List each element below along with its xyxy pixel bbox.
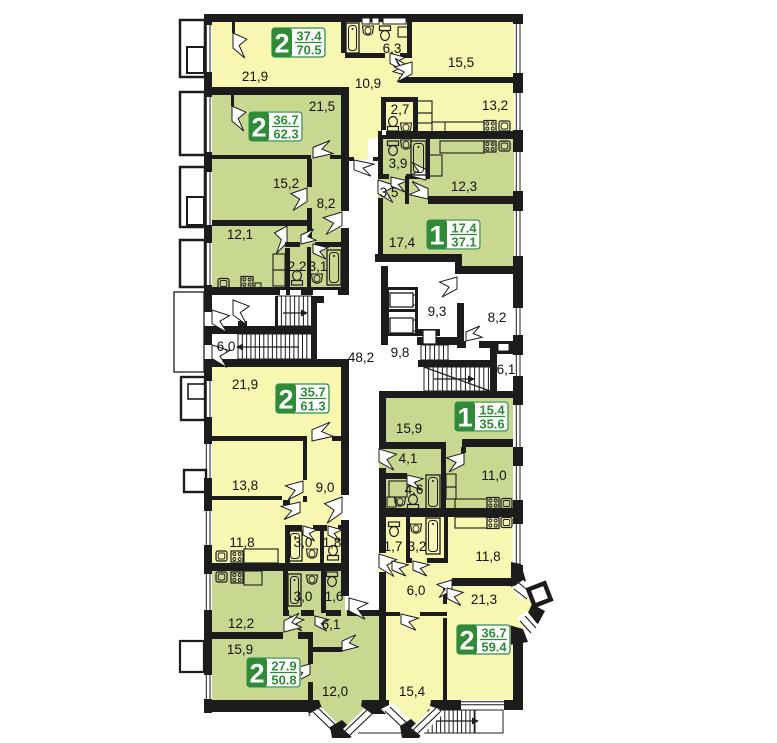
svg-text:1,8: 1,8: [323, 535, 342, 550]
svg-text:15,9: 15,9: [227, 642, 253, 657]
svg-text:2,2: 2,2: [288, 259, 307, 274]
svg-text:37.1: 37.1: [451, 235, 476, 250]
svg-text:2: 2: [251, 113, 266, 143]
svg-text:2: 2: [274, 29, 289, 59]
svg-text:27.9: 27.9: [271, 659, 296, 674]
svg-text:3,1: 3,1: [309, 259, 328, 274]
svg-text:15,9: 15,9: [396, 421, 422, 436]
svg-text:12,3: 12,3: [451, 179, 477, 194]
svg-text:11,8: 11,8: [475, 549, 500, 564]
svg-text:37.4: 37.4: [296, 29, 322, 44]
svg-text:8,2: 8,2: [317, 196, 336, 211]
svg-text:12,0: 12,0: [322, 684, 348, 699]
svg-text:6,1: 6,1: [322, 617, 341, 632]
svg-text:2: 2: [278, 385, 293, 415]
svg-text:3,0: 3,0: [294, 589, 313, 604]
svg-text:6,0: 6,0: [217, 339, 236, 354]
svg-text:36.7: 36.7: [273, 113, 298, 128]
svg-text:35.6: 35.6: [479, 417, 504, 432]
svg-text:3,9: 3,9: [389, 156, 408, 171]
svg-text:11,8: 11,8: [229, 535, 254, 550]
svg-text:11,0: 11,0: [481, 468, 506, 483]
svg-text:1: 1: [457, 403, 472, 433]
svg-text:36.7: 36.7: [481, 626, 506, 641]
svg-text:6,3: 6,3: [383, 41, 402, 56]
svg-text:1,7: 1,7: [384, 539, 403, 554]
svg-text:13,2: 13,2: [482, 98, 508, 113]
svg-text:70.5: 70.5: [296, 43, 321, 58]
svg-text:35.7: 35.7: [300, 385, 325, 400]
svg-text:1,6: 1,6: [325, 589, 344, 604]
svg-text:21,9: 21,9: [232, 377, 258, 392]
svg-text:4,1: 4,1: [399, 451, 418, 466]
svg-text:2: 2: [249, 659, 264, 689]
svg-text:10,9: 10,9: [355, 76, 381, 91]
svg-text:9,0: 9,0: [316, 480, 335, 495]
svg-text:8,2: 8,2: [488, 310, 507, 325]
svg-text:9,8: 9,8: [391, 345, 410, 360]
svg-text:4,6: 4,6: [405, 482, 424, 497]
svg-text:48,2: 48,2: [348, 350, 374, 365]
svg-text:17.4: 17.4: [451, 221, 477, 236]
svg-text:21,9: 21,9: [242, 69, 268, 84]
svg-text:21,3: 21,3: [471, 592, 497, 607]
svg-text:3,2: 3,2: [408, 539, 427, 554]
svg-text:59.4: 59.4: [481, 640, 507, 655]
svg-text:61.3: 61.3: [300, 399, 325, 414]
svg-text:12,2: 12,2: [228, 616, 254, 631]
svg-text:15.4: 15.4: [479, 403, 505, 418]
svg-text:1: 1: [429, 221, 444, 251]
svg-text:6,1: 6,1: [497, 362, 516, 377]
svg-text:3,0: 3,0: [294, 535, 313, 550]
svg-text:12,1: 12,1: [227, 227, 253, 242]
svg-text:17,4: 17,4: [389, 235, 416, 250]
svg-text:2,7: 2,7: [391, 102, 410, 117]
svg-text:6,0: 6,0: [407, 583, 426, 598]
svg-text:9,3: 9,3: [428, 304, 447, 319]
svg-text:3,5: 3,5: [380, 185, 399, 200]
svg-text:50.8: 50.8: [271, 673, 296, 688]
svg-text:15,5: 15,5: [448, 55, 474, 70]
svg-text:15,4: 15,4: [399, 684, 426, 699]
svg-text:62.3: 62.3: [273, 127, 298, 142]
svg-text:13,8: 13,8: [232, 478, 258, 493]
svg-text:15,2: 15,2: [273, 176, 299, 191]
svg-text:21,5: 21,5: [309, 99, 335, 114]
svg-text:2: 2: [459, 626, 474, 656]
